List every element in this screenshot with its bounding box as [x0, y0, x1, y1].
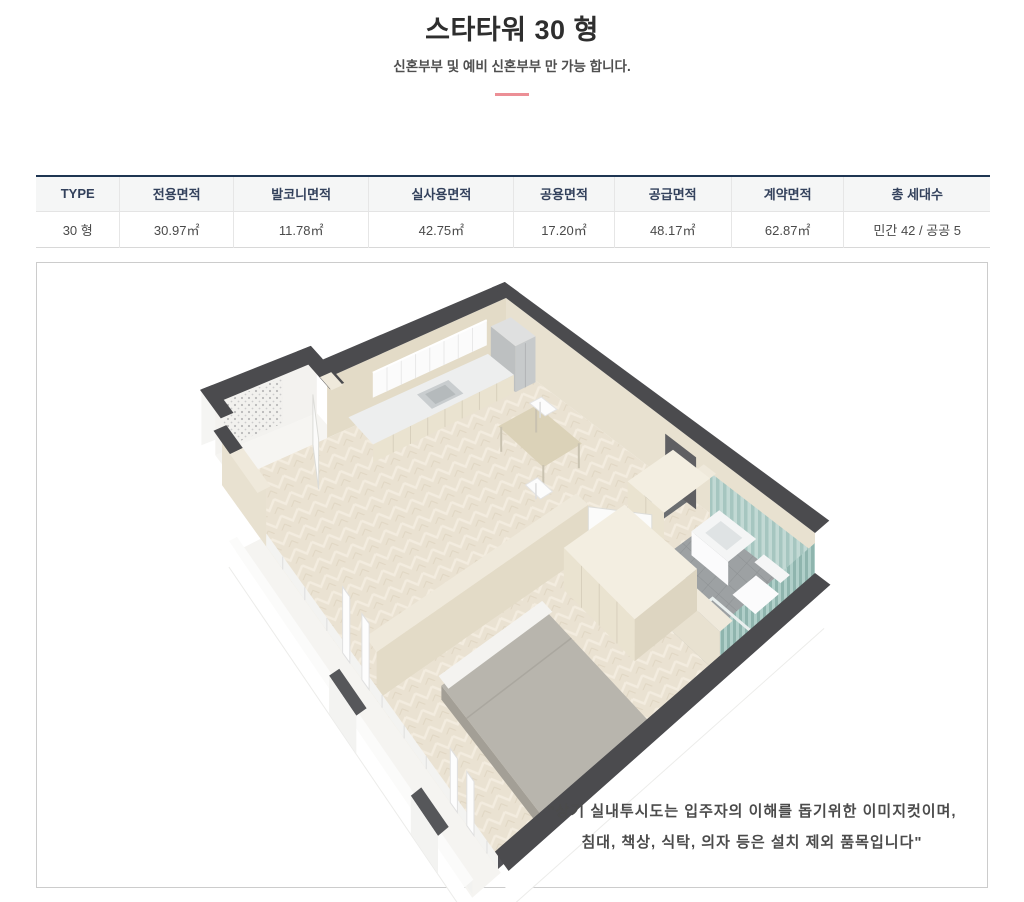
disclaimer-line-1: "상기 실내투시도는 입주자의 이해를 돕기위한 이미지컷이며,	[542, 796, 962, 827]
cell-balcony-area: 11.78㎡	[233, 211, 368, 247]
cell-supply-area: 48.17㎡	[614, 211, 731, 247]
col-type: TYPE	[36, 176, 120, 211]
floorplan-panel: "상기 실내투시도는 입주자의 이해를 돕기위한 이미지컷이며, 침대, 책상,…	[36, 262, 988, 888]
col-common-area: 공용면적	[514, 176, 614, 211]
page-root: 스타타워 30 형 신혼부부 및 예비 신혼부부 만 가능 합니다. TYPE …	[0, 0, 1024, 902]
cell-common-area: 17.20㎡	[514, 211, 614, 247]
area-spec-table: TYPE 전용면적 발코니면적 실사용면적 공용면적 공급면적 계약면적 총 세…	[36, 175, 990, 248]
plan-disclaimer: "상기 실내투시도는 입주자의 이해를 돕기위한 이미지컷이며, 침대, 책상,…	[542, 796, 962, 858]
cell-actual-use-area: 42.75㎡	[369, 211, 514, 247]
disclaimer-line-2: 침대, 책상, 식탁, 의자 등은 설치 제외 품목입니다"	[542, 827, 962, 858]
col-contract-area: 계약면적	[731, 176, 844, 211]
col-balcony-area: 발코니면적	[233, 176, 368, 211]
col-exclusive-area: 전용면적	[120, 176, 234, 211]
page-subtitle: 신혼부부 및 예비 신혼부부 만 가능 합니다.	[0, 55, 1024, 75]
cell-type: 30 형	[36, 211, 120, 247]
cell-exclusive-area: 30.97㎡	[120, 211, 234, 247]
title-divider	[495, 93, 529, 96]
table-header-row: TYPE 전용면적 발코니면적 실사용면적 공용면적 공급면적 계약면적 총 세…	[36, 176, 990, 211]
col-supply-area: 공급면적	[614, 176, 731, 211]
col-households: 총 세대수	[844, 176, 990, 211]
cell-contract-area: 62.87㎡	[731, 211, 844, 247]
col-actual-use-area: 실사용면적	[369, 176, 514, 211]
page-title: 스타타워 30 형	[0, 8, 1024, 47]
cell-households: 민간 42 / 공공 5	[844, 211, 990, 247]
table-row: 30 형 30.97㎡ 11.78㎡ 42.75㎡ 17.20㎡ 48.17㎡ …	[36, 211, 990, 247]
